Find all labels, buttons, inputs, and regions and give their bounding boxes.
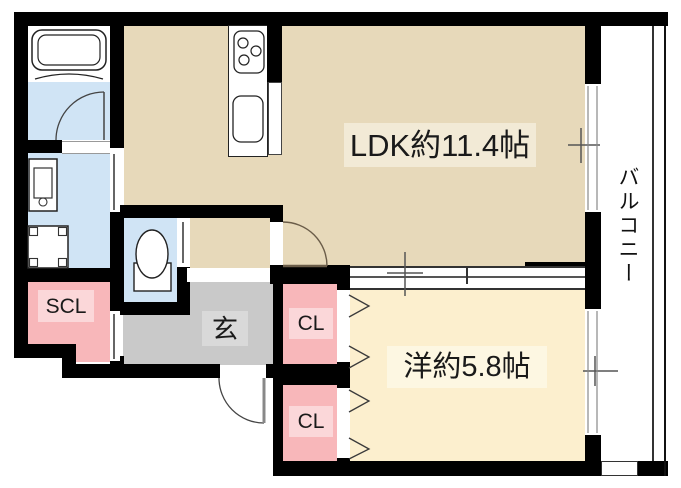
room-washroom [28, 153, 110, 268]
room-toilet [124, 218, 177, 302]
entrance-step-threshold [187, 268, 270, 282]
wall-right-upper [585, 26, 601, 84]
wall-hall-band [110, 205, 283, 218]
bedroom-label: 洋約5.8帖 [387, 346, 547, 388]
closet-upper-label: CL [289, 308, 333, 339]
washroom-sliding-door [110, 148, 120, 212]
kitchen-partition-wall [267, 25, 282, 82]
closet-upper-door [337, 290, 350, 362]
wall-ldk-door-stub [270, 205, 283, 222]
wall-right-middle [585, 212, 601, 309]
kitchen-counter [228, 25, 268, 157]
kitchen-counter-return [268, 82, 282, 155]
room-bathroom-floor [28, 82, 110, 140]
wall-mid-middle [110, 212, 124, 311]
balcony-bottom-edge [601, 461, 638, 476]
entrance-label: 玄 [202, 311, 248, 346]
room-shoe-closet-ext [76, 344, 110, 362]
ldk-label: LDK約11.4帖 [344, 123, 536, 167]
wall-mid-upper [110, 26, 124, 148]
wall-bottom [273, 461, 601, 476]
wall-entry-stub [266, 364, 283, 378]
entrance-door-arc [219, 378, 264, 423]
window-ldk [585, 84, 601, 212]
closet-lower-door [337, 388, 350, 458]
balcony-rail-outer-line [664, 26, 666, 476]
balcony-rail-inner-line [652, 26, 654, 461]
bathroom-door-opening [62, 141, 110, 154]
ldk-bedroom-partition [350, 266, 585, 290]
entry-door-opening [220, 365, 266, 378]
wall-washroom-bottom [14, 268, 124, 282]
partition-divider [466, 268, 468, 284]
wall-top [14, 12, 668, 26]
wall-hall-ldk [270, 265, 350, 284]
toilet-sliding-door [177, 218, 190, 267]
wall-left [14, 12, 28, 358]
scl-label: SCL [38, 290, 94, 322]
wall-right-lower [585, 435, 601, 461]
wall-entrance-bottom [62, 364, 220, 378]
balcony-label: バルコニー [612, 166, 642, 286]
closet-lower-label: CL [289, 406, 333, 437]
window-bedroom [585, 309, 601, 435]
ldk-door-opening [270, 222, 283, 265]
room-bathroom-tub-area [28, 26, 110, 82]
wall-bath-divider [28, 140, 62, 153]
scl-sliding-door [110, 311, 120, 361]
floorplan-canvas: LDK約11.4帖 洋約5.8帖 玄 SCL CL CL バルコニー [0, 0, 681, 488]
